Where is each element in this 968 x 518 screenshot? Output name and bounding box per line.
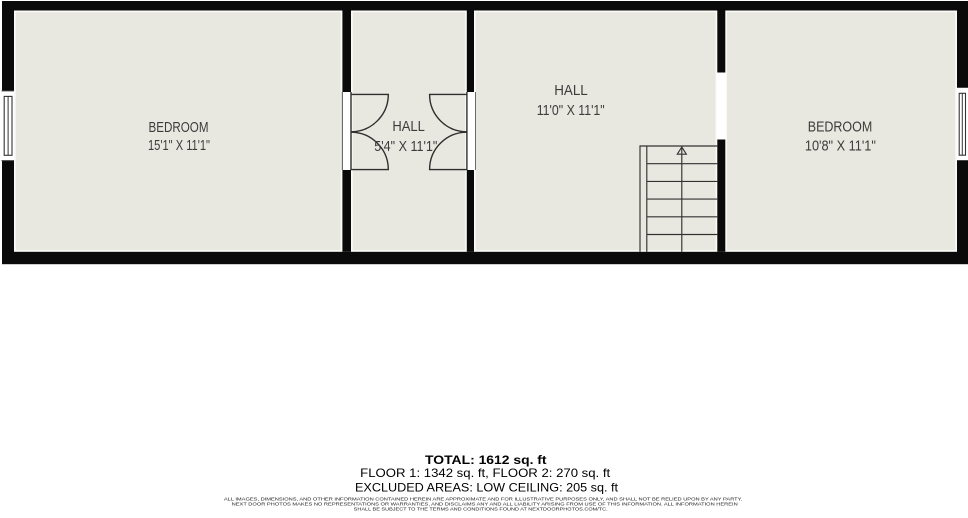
svg-text:11'0" X 11'1": 11'0" X 11'1" — [537, 102, 605, 119]
svg-text:HALL: HALL — [392, 118, 425, 135]
svg-text:FLOOR 1: 1342 sq. ft, FLOOR 2:: FLOOR 1: 1342 sq. ft, FLOOR 2: 270 sq. f… — [360, 466, 611, 480]
svg-text:TOTAL: 1612 sq. ft: TOTAL: 1612 sq. ft — [425, 453, 547, 467]
svg-text:5'4" X 11'1": 5'4" X 11'1" — [374, 138, 437, 155]
svg-text:ALL IMAGES, DIMENSIONS, AND OT: ALL IMAGES, DIMENSIONS, AND OTHER INFORM… — [224, 497, 742, 503]
svg-text:HALL: HALL — [554, 82, 588, 99]
svg-text:BEDROOM: BEDROOM — [149, 119, 209, 136]
svg-text:BEDROOM: BEDROOM — [808, 118, 873, 135]
svg-text:15'1" X 11'1": 15'1" X 11'1" — [148, 137, 210, 154]
svg-text:SHALL BE SUBJECT TO THE TERMS: SHALL BE SUBJECT TO THE TERMS AND CONDIT… — [354, 507, 608, 513]
svg-text:EXCLUDED AREAS: LOW CEILING: 2: EXCLUDED AREAS: LOW CEILING: 205 sq. ft — [355, 481, 619, 495]
svg-text:10'8" X 11'1": 10'8" X 11'1" — [805, 138, 876, 155]
